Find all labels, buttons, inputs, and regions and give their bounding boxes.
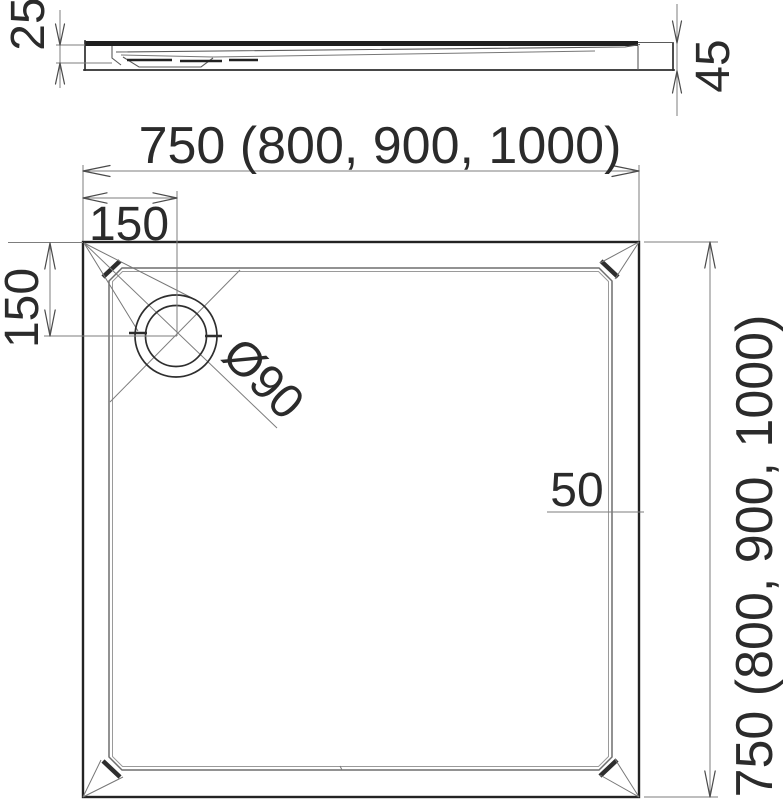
dim-profile-thickness-label: 25 <box>2 0 55 51</box>
technical-drawing-canvas: 25 45 <box>0 0 784 800</box>
dim-drain-diameter: Ø90 <box>212 328 314 430</box>
dim-profile-height-label: 45 <box>687 39 740 92</box>
dim-width-top-label: 750 (800, 900, 1000) <box>139 117 622 175</box>
tray-outer-edge <box>83 242 639 797</box>
corner-chamfer-bottom-left <box>103 761 120 777</box>
dim-edge-offset-label: 50 <box>550 464 603 517</box>
dim-profile-height: 45 <box>673 4 741 116</box>
dim-height-right: 750 (800, 900, 1000) <box>644 242 784 797</box>
profile-top-surface <box>85 41 638 46</box>
tray-inner-edge <box>109 268 612 770</box>
dim-drain-offset-y-label: 150 <box>0 268 49 348</box>
plan-view <box>83 242 639 797</box>
dim-edge-offset: 50 <box>547 464 644 517</box>
dim-drain-offset-x-label: 150 <box>89 198 169 251</box>
dim-drain-diameter-label: Ø90 <box>212 328 314 430</box>
side-profile-view <box>84 41 674 70</box>
profile-drain-sump <box>123 57 258 67</box>
dim-drain-offset-y: 150 <box>0 243 177 349</box>
corner-chamfer-top-right <box>601 261 618 277</box>
dim-height-right-label: 750 (800, 900, 1000) <box>726 315 784 798</box>
drawing-sheet: 25 45 <box>0 0 784 800</box>
